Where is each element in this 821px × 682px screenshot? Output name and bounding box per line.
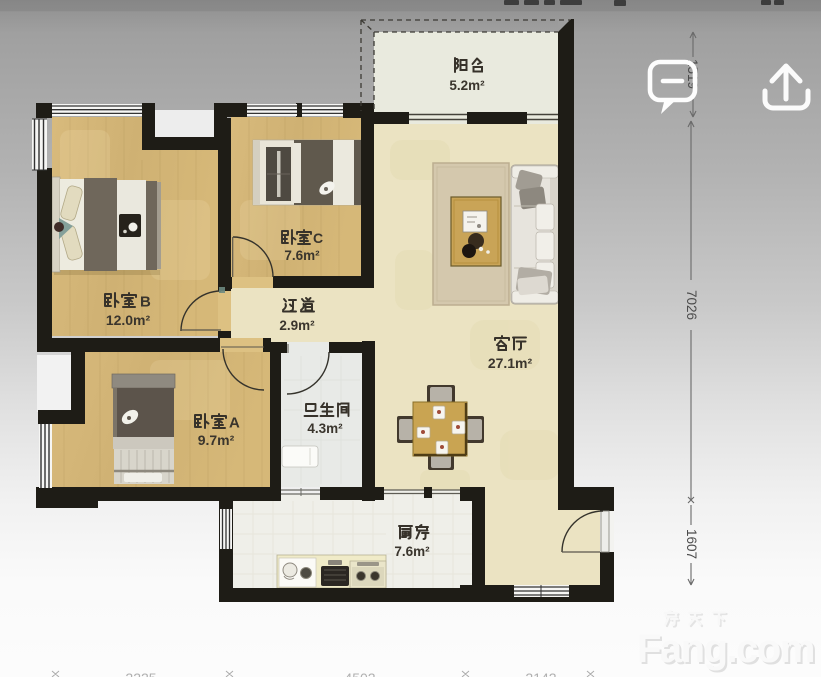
svg-text:Fang.com: Fang.com: [637, 627, 814, 671]
svg-text:27.1m²: 27.1m²: [488, 355, 533, 371]
svg-text:1607: 1607: [684, 529, 699, 559]
svg-text:12.0m²: 12.0m²: [106, 312, 151, 328]
svg-text:2.9m²: 2.9m²: [279, 318, 315, 333]
svg-text:2225: 2225: [125, 670, 156, 677]
svg-text:C: C: [313, 230, 323, 246]
svg-text:2142: 2142: [525, 670, 556, 677]
svg-text:A: A: [229, 415, 240, 432]
svg-text:5.2m²: 5.2m²: [449, 78, 485, 93]
svg-text:7026: 7026: [684, 290, 699, 320]
svg-text:B: B: [140, 294, 151, 311]
svg-text:7.6m²: 7.6m²: [284, 248, 320, 263]
svg-text:4502: 4502: [344, 670, 375, 677]
svg-text:4.3m²: 4.3m²: [307, 421, 343, 436]
svg-text:9.7m²: 9.7m²: [198, 432, 235, 448]
svg-text:7.6m²: 7.6m²: [394, 544, 430, 559]
